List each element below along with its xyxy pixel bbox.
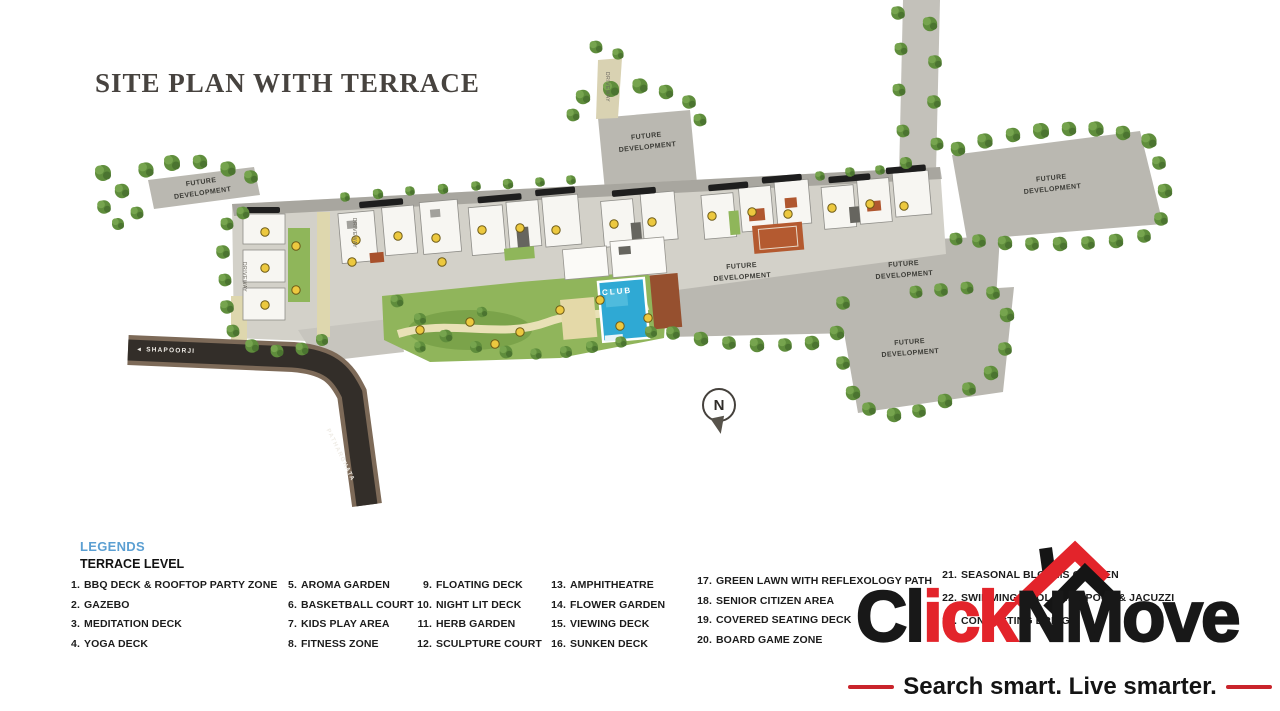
driveway-label: DRIVEWAY — [351, 218, 357, 248]
logo-tagline-row: Search smart. Live smarter. — [840, 673, 1280, 701]
legend-item: 12.SCULPTURE COURT — [415, 638, 542, 658]
clicknmove-logo: ClickNMove Search smart. Live smarter. — [840, 540, 1280, 711]
legend-column-2: 5.AROMA GARDEN 6.BASKETBALL COURT 7.KIDS… — [280, 579, 414, 657]
logo-wordmark: ClickNMove — [856, 582, 1238, 653]
legend-item: 10.NIGHT LIT DECK — [415, 599, 542, 619]
logo-text-black: NMove — [1016, 578, 1239, 657]
legend-item: 6.BASKETBALL COURT — [280, 599, 414, 619]
site-plan-page: SITE PLAN WITH TERRACE — [0, 0, 1280, 711]
legend-column-4: 13.AMPHITHEATRE 14.FLOWER GARDEN 15.VIEW… — [549, 579, 665, 657]
logo-text-black: Cl — [856, 578, 923, 657]
driveway-label: DRIVEWAY — [241, 262, 247, 292]
legend-item: 14.FLOWER GARDEN — [549, 599, 665, 619]
legend-column-3: 9.FLOATING DECK 10.NIGHT LIT DECK 11.HER… — [415, 579, 542, 657]
site-plan-illustration: FUTURE DEVELOPMENT FUTURE DEVELOPMENT FU… — [0, 0, 1280, 530]
driveway-label: DRIVEWAY — [604, 72, 610, 102]
legend-item: 3.MEDITATION DECK — [63, 618, 277, 638]
walkway-strip — [317, 212, 330, 337]
legend-item: 11.HERB GARDEN — [415, 618, 542, 638]
road-arrow-icon: ◄ — [136, 347, 143, 353]
legends-heading: LEGENDS — [80, 539, 145, 554]
legends-subheading: TERRACE LEVEL — [80, 557, 184, 571]
legend-item: 2.GAZEBO — [63, 599, 277, 619]
legend-item: 15.VIEWING DECK — [549, 618, 665, 638]
legend-item: 13.AMPHITHEATRE — [549, 579, 665, 599]
legend-item: 8.FITNESS ZONE — [280, 638, 414, 658]
legend-item: 7.KIDS PLAY AREA — [280, 618, 414, 638]
legend-item: 1.BBQ DECK & ROOFTOP PARTY ZONE — [63, 579, 277, 599]
tagline-dash-left — [848, 685, 894, 689]
basketball-court — [752, 222, 804, 254]
legend-item: 5.AROMA GARDEN — [280, 579, 414, 599]
tagline-dash-right — [1226, 685, 1272, 689]
legend-item: 16.SUNKEN DECK — [549, 638, 665, 658]
access-road — [128, 341, 367, 505]
legend-item: 9.FLOATING DECK — [415, 579, 542, 599]
logo-text-red: ick — [923, 578, 1016, 657]
legend-column-1: 1.BBQ DECK & ROOFTOP PARTY ZONE 2.GAZEBO… — [63, 579, 277, 657]
legend-item: 4.YOGA DECK — [63, 638, 277, 658]
logo-tagline: Search smart. Live smarter. — [903, 673, 1217, 701]
site-plan-svg — [0, 0, 1280, 530]
